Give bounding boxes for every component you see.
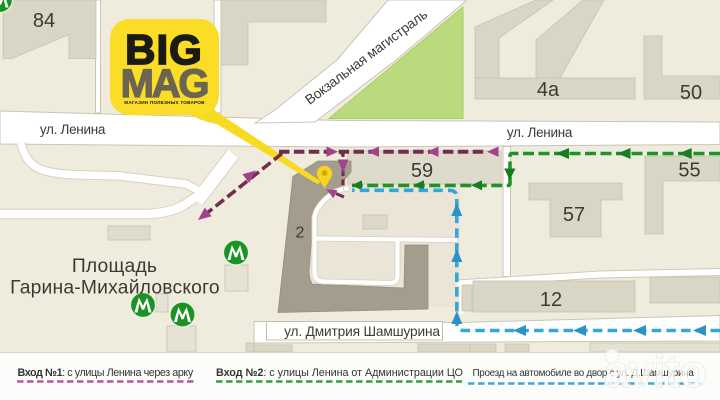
svg-text:59: 59 (411, 160, 433, 182)
svg-text:Гарина-Михайловского: Гарина-Михайловского (10, 278, 220, 299)
svg-text:Площадь: Площадь (72, 256, 157, 277)
svg-text:2: 2 (296, 225, 305, 242)
svg-text:Вход №1: с улицы Ленина через: Вход №1: с улицы Ленина через арку (18, 367, 194, 379)
svg-text:ул. Ленина: ул. Ленина (40, 122, 106, 137)
svg-text:Вход №2: с улицы Ленина от Ад: Вход №2: с улицы Ленина от Администрации… (216, 367, 463, 379)
svg-text:ул. Дмитрия Шамшурина: ул. Дмитрия Шамшурина (284, 324, 440, 339)
svg-text:avito: avito (604, 345, 706, 397)
svg-text:50: 50 (680, 82, 702, 104)
svg-text:МАГАЗИН ПОЛЕЗНЫХ ТОВАРОВ: МАГАЗИН ПОЛЕЗНЫХ ТОВАРОВ (124, 100, 205, 105)
svg-text:4а: 4а (537, 79, 560, 101)
svg-text:57: 57 (563, 204, 585, 226)
svg-text:12: 12 (540, 289, 562, 311)
svg-text:84: 84 (33, 10, 55, 32)
svg-text:55: 55 (678, 160, 700, 182)
svg-text:ул. Ленина: ул. Ленина (507, 125, 573, 140)
